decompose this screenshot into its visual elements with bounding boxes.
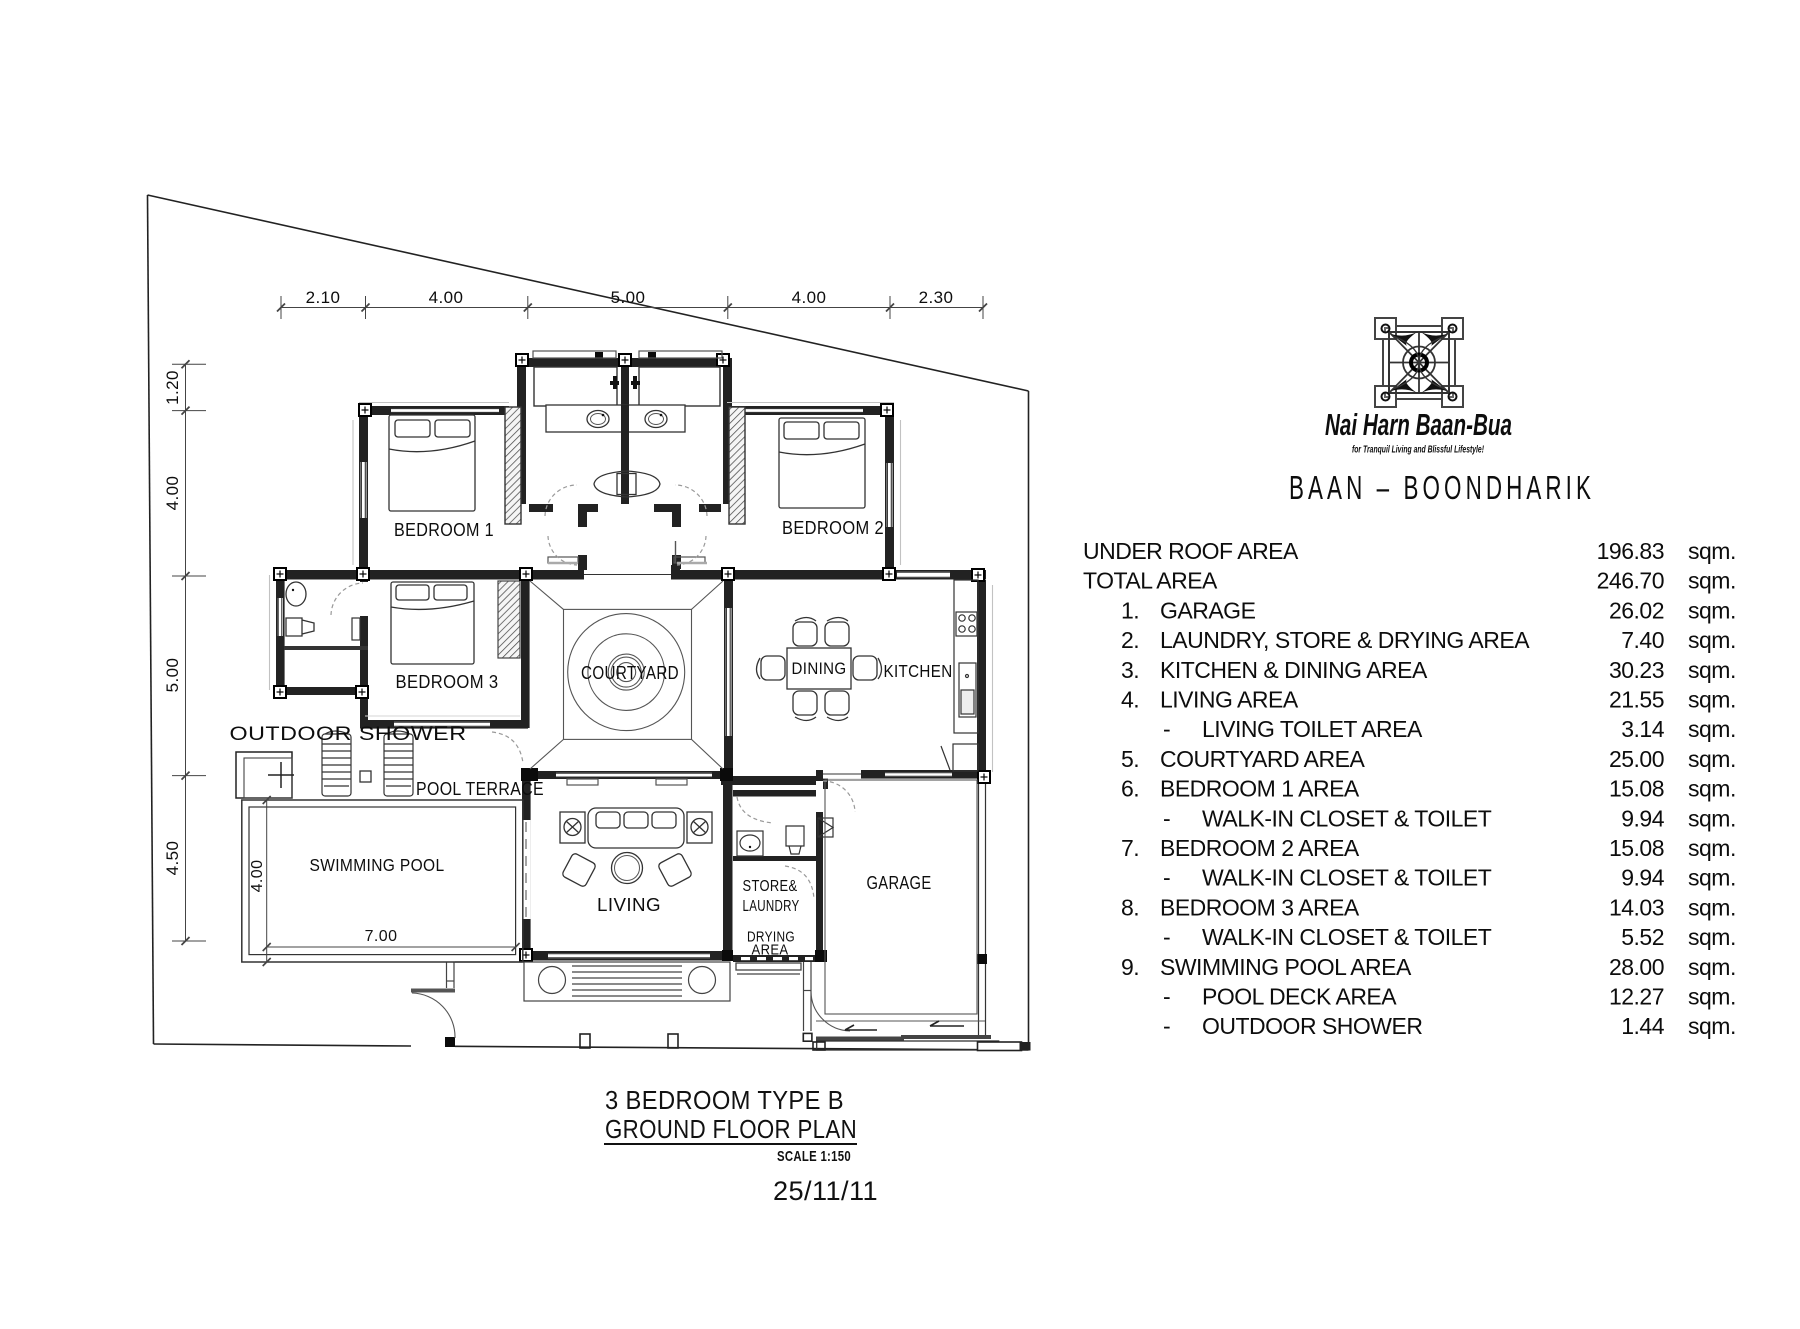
svg-text:25.00: 25.00 — [1609, 746, 1664, 772]
svg-text:28.00: 28.00 — [1609, 954, 1664, 980]
svg-text:4.50: 4.50 — [163, 841, 182, 876]
svg-text:4.00: 4.00 — [249, 860, 266, 893]
svg-text:sqm.: sqm. — [1688, 805, 1736, 831]
svg-text:5.52: 5.52 — [1621, 924, 1664, 950]
svg-text:OUTDOOR SHOWER: OUTDOOR SHOWER — [1202, 1013, 1422, 1039]
svg-text:15.08: 15.08 — [1609, 776, 1664, 802]
svg-text:246.70: 246.70 — [1597, 568, 1664, 594]
svg-text:7.00: 7.00 — [365, 928, 398, 945]
svg-text:sqm.: sqm. — [1688, 835, 1736, 861]
svg-text:WALK-IN CLOSET & TOILET: WALK-IN CLOSET & TOILET — [1202, 805, 1492, 831]
svg-text:AREA: AREA — [752, 943, 789, 959]
svg-text:sqm.: sqm. — [1688, 716, 1736, 742]
svg-text:SWIMMING POOL: SWIMMING POOL — [310, 855, 445, 875]
svg-text:sqm.: sqm. — [1688, 568, 1736, 594]
svg-text:9.: 9. — [1121, 954, 1139, 980]
svg-text:sqm.: sqm. — [1688, 1013, 1736, 1039]
svg-text:-: - — [1163, 984, 1170, 1010]
svg-text:6.: 6. — [1121, 776, 1139, 802]
svg-text:-: - — [1163, 1013, 1170, 1039]
svg-text:WALK-IN CLOSET & TOILET: WALK-IN CLOSET & TOILET — [1202, 865, 1492, 891]
svg-text:BEDROOM 3: BEDROOM 3 — [396, 672, 499, 692]
svg-text:4.00: 4.00 — [429, 288, 464, 307]
svg-text:GARAGE: GARAGE — [867, 873, 932, 893]
svg-text:3.: 3. — [1121, 657, 1139, 683]
svg-text:sqm.: sqm. — [1688, 538, 1736, 564]
svg-text:STORE&: STORE& — [743, 878, 798, 895]
svg-text:12.27: 12.27 — [1609, 984, 1664, 1010]
svg-text:LIVING TOILET AREA: LIVING TOILET AREA — [1202, 716, 1423, 742]
svg-text:2.30: 2.30 — [919, 288, 954, 307]
svg-text:2.: 2. — [1121, 627, 1139, 653]
svg-text:POOL TERRACE: POOL TERRACE — [416, 779, 544, 799]
svg-text:9.94: 9.94 — [1621, 805, 1664, 831]
svg-text:WALK-IN CLOSET & TOILET: WALK-IN CLOSET & TOILET — [1202, 924, 1492, 950]
svg-text:BEDROOM 1 AREA: BEDROOM 1 AREA — [1160, 776, 1360, 802]
svg-text:5.00: 5.00 — [611, 288, 646, 307]
svg-text:UNDER ROOF AREA: UNDER ROOF AREA — [1083, 538, 1299, 564]
svg-text:sqm.: sqm. — [1688, 657, 1736, 683]
svg-text:BEDROOM 3 AREA: BEDROOM 3 AREA — [1160, 894, 1360, 920]
svg-text:3 BEDROOM TYPE B: 3 BEDROOM TYPE B — [605, 1085, 844, 1115]
svg-text:BAAN – BOONDHARIK: BAAN – BOONDHARIK — [1289, 469, 1595, 506]
svg-text:sqm.: sqm. — [1688, 597, 1736, 623]
svg-text:1.: 1. — [1121, 597, 1139, 623]
svg-text:LIVING: LIVING — [597, 895, 661, 915]
svg-text:DINING: DINING — [792, 660, 847, 678]
svg-text:-: - — [1163, 865, 1170, 891]
svg-text:30.23: 30.23 — [1609, 657, 1664, 683]
svg-text:26.02: 26.02 — [1609, 597, 1664, 623]
svg-text:7.: 7. — [1121, 835, 1139, 861]
svg-text:5.00: 5.00 — [163, 658, 182, 693]
svg-text:COURTYARD: COURTYARD — [581, 663, 679, 683]
svg-text:8.: 8. — [1121, 894, 1139, 920]
svg-text:SWIMMING POOL AREA: SWIMMING POOL AREA — [1160, 954, 1412, 980]
svg-text:BEDROOM 2 AREA: BEDROOM 2 AREA — [1160, 835, 1360, 861]
svg-text:sqm.: sqm. — [1688, 924, 1736, 950]
svg-text:LIVING AREA: LIVING AREA — [1160, 687, 1299, 713]
svg-text:7.40: 7.40 — [1621, 627, 1664, 653]
svg-text:LAUNDRY: LAUNDRY — [743, 898, 800, 915]
svg-text:21.55: 21.55 — [1609, 687, 1664, 713]
svg-text:OUTDOOR SHOWER: OUTDOOR SHOWER — [230, 723, 467, 745]
svg-text:Nai Harn Baan-Bua: Nai Harn Baan-Bua — [1325, 407, 1512, 442]
svg-text:1.44: 1.44 — [1621, 1013, 1664, 1039]
svg-text:sqm.: sqm. — [1688, 776, 1736, 802]
svg-text:KITCHEN: KITCHEN — [884, 661, 953, 681]
svg-text:4.00: 4.00 — [792, 288, 827, 307]
svg-text:LAUNDRY, STORE & DRYING AREA: LAUNDRY, STORE & DRYING AREA — [1160, 627, 1530, 653]
svg-text:sqm.: sqm. — [1688, 954, 1736, 980]
svg-text:POOL DECK AREA: POOL DECK AREA — [1202, 984, 1397, 1010]
svg-text:sqm.: sqm. — [1688, 984, 1736, 1010]
svg-text:for Tranquil Living and Blissf: for Tranquil Living and Blissful Lifesty… — [1352, 444, 1484, 456]
svg-text:1.20: 1.20 — [163, 370, 182, 405]
svg-text:4.: 4. — [1121, 687, 1139, 713]
svg-text:3.14: 3.14 — [1621, 716, 1664, 742]
svg-text:sqm.: sqm. — [1688, 627, 1736, 653]
svg-text:sqm.: sqm. — [1688, 865, 1736, 891]
svg-text:TOTAL AREA: TOTAL AREA — [1083, 568, 1218, 594]
svg-text:4.00: 4.00 — [163, 476, 182, 511]
svg-text:COURTYARD AREA: COURTYARD AREA — [1160, 746, 1365, 772]
svg-text:sqm.: sqm. — [1688, 746, 1736, 772]
svg-text:-: - — [1163, 716, 1170, 742]
svg-text:BEDROOM 1: BEDROOM 1 — [394, 520, 494, 540]
svg-text:BEDROOM 2: BEDROOM 2 — [782, 518, 884, 538]
svg-text:14.03: 14.03 — [1609, 894, 1664, 920]
svg-text:GARAGE: GARAGE — [1160, 597, 1256, 623]
svg-text:15.08: 15.08 — [1609, 835, 1664, 861]
svg-text:-: - — [1163, 805, 1170, 831]
svg-text:25/11/11: 25/11/11 — [773, 1176, 878, 1206]
svg-text:5.: 5. — [1121, 746, 1139, 772]
svg-text:GROUND FLOOR PLAN: GROUND FLOOR PLAN — [605, 1114, 857, 1144]
svg-text:sqm.: sqm. — [1688, 894, 1736, 920]
svg-text:sqm.: sqm. — [1688, 687, 1736, 713]
svg-text:2.10: 2.10 — [306, 288, 341, 307]
svg-text:9.94: 9.94 — [1621, 865, 1664, 891]
svg-text:196.83: 196.83 — [1597, 538, 1664, 564]
svg-text:-: - — [1163, 924, 1170, 950]
svg-text:SCALE 1:150: SCALE 1:150 — [777, 1148, 851, 1165]
svg-text:KITCHEN & DINING AREA: KITCHEN & DINING AREA — [1160, 657, 1428, 683]
